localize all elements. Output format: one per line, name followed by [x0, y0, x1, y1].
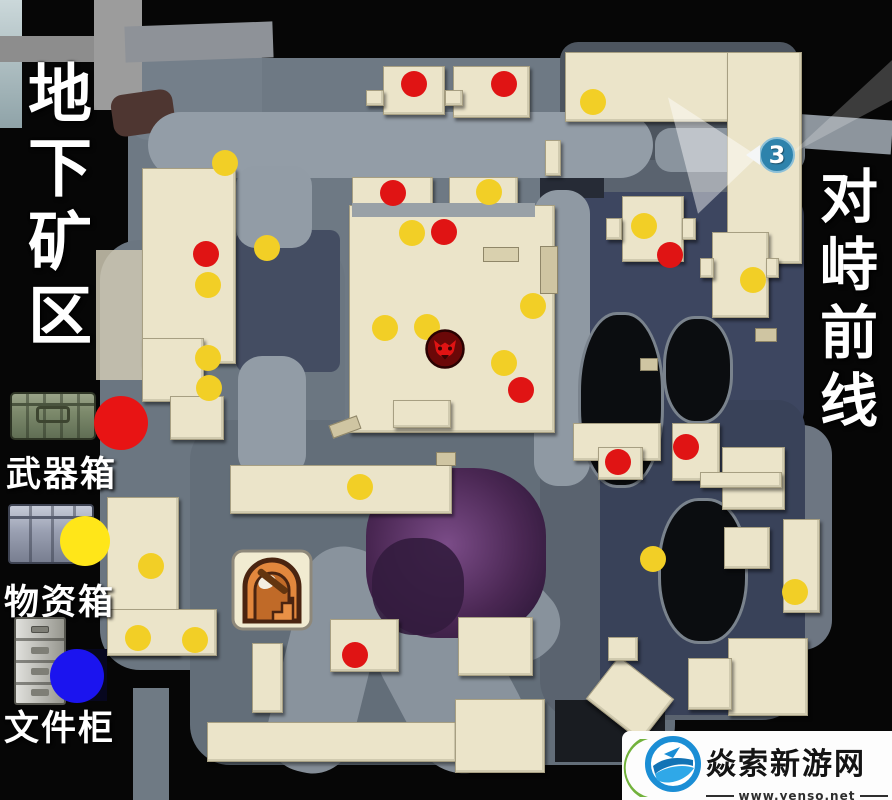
watermark-text-block: 焱索新游网 www.yenso.net [706, 739, 888, 800]
weapon-box-marker [342, 642, 368, 668]
supply-box-marker [138, 553, 164, 579]
weapon-box-marker [491, 71, 517, 97]
waypoint-number: 3 [769, 141, 786, 169]
map-title-right: 对峙前线 [802, 166, 886, 438]
weapon-crate-icon [10, 392, 96, 440]
supply-box-marker [520, 293, 546, 319]
supply-box-marker [196, 375, 222, 401]
legend-dot-weapon [94, 396, 148, 450]
supply-box-marker [491, 350, 517, 376]
map-title-left: 地下矿区 [8, 60, 100, 356]
supply-box-marker [182, 627, 208, 653]
watermark: 焱索新游网 www.yenso.net [622, 731, 892, 800]
supply-box-marker [347, 474, 373, 500]
site-url: www.yenso.net [739, 789, 856, 800]
supply-box-marker [195, 272, 221, 298]
divider-line [706, 795, 734, 797]
waypoint-marker: 3 [759, 137, 795, 173]
supply-box-marker [631, 213, 657, 239]
map-guide-image: 3 地下矿区 对峙前线 武器箱 物资箱 文件柜 焱索新游网 [0, 0, 892, 800]
supply-box-marker [399, 220, 425, 246]
site-logo-icon [644, 735, 702, 797]
weapon-box-marker [673, 434, 699, 460]
divider-line [860, 795, 888, 797]
supply-box-marker [254, 235, 280, 261]
supply-box-marker [125, 625, 151, 651]
site-name: 焱索新游网 [706, 739, 888, 783]
weapon-box-marker [431, 219, 457, 245]
weapon-box-marker [605, 449, 631, 475]
legend-dot-supply [60, 516, 110, 566]
legend-dot-cabinet [50, 649, 104, 703]
boss-marker [425, 329, 465, 369]
site-url-row: www.yenso.net [706, 789, 888, 800]
supply-box-marker [372, 315, 398, 341]
legend-label-weapon: 武器箱 [6, 446, 117, 497]
weapon-box-marker [508, 377, 534, 403]
weapon-box-marker [401, 71, 427, 97]
weapon-box-marker [657, 242, 683, 268]
supply-box-marker [640, 546, 666, 572]
weapon-box-marker [380, 180, 406, 206]
supply-box-marker [740, 267, 766, 293]
supply-box-marker [476, 179, 502, 205]
supply-box-marker [580, 89, 606, 115]
supply-box-marker [195, 345, 221, 371]
supply-box-marker [782, 579, 808, 605]
supply-box-marker [212, 150, 238, 176]
weapon-box-marker [193, 241, 219, 267]
legend-label-cabinet: 文件柜 [4, 700, 115, 751]
